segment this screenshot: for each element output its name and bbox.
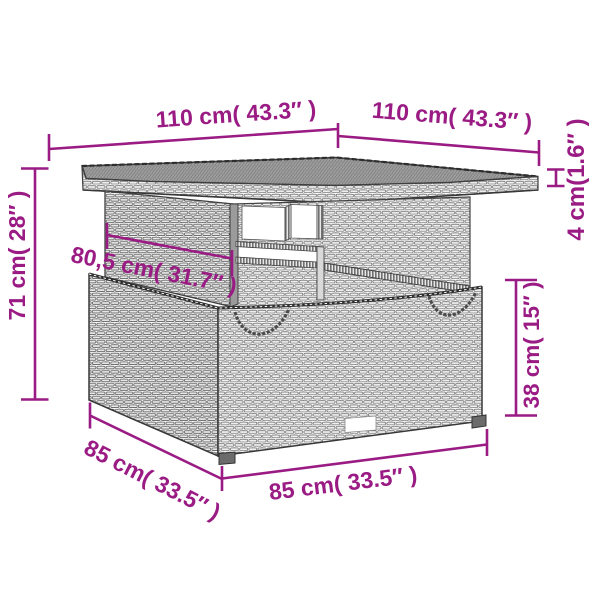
svg-text:71 cm( 28″ ): 71 cm( 28″ ) bbox=[4, 191, 30, 321]
svg-text:4 cm(1.6″ ): 4 cm(1.6″ ) bbox=[563, 118, 590, 240]
svg-text:38 cm( 15″ ): 38 cm( 15″ ) bbox=[519, 281, 544, 408]
